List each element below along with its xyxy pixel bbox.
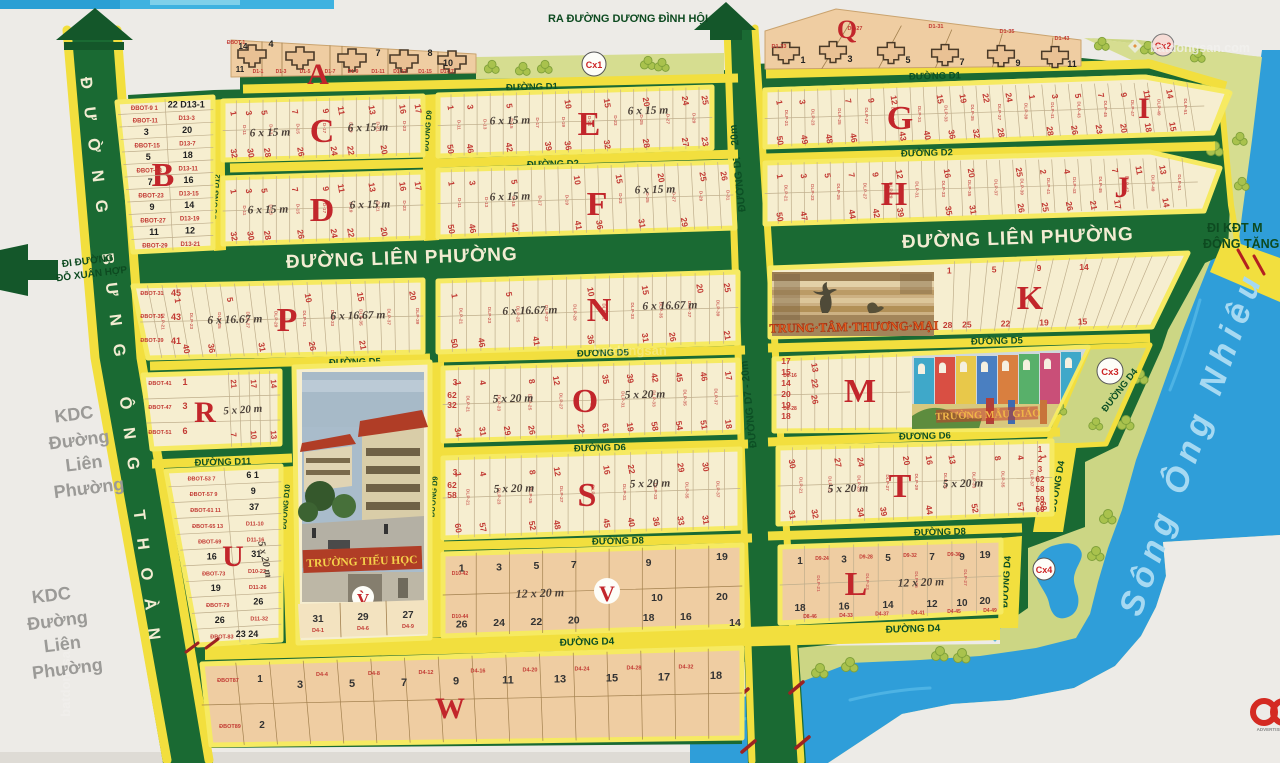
svg-text:22: 22 bbox=[345, 227, 357, 238]
svg-text:3: 3 bbox=[847, 54, 852, 64]
svg-text:H: H bbox=[881, 176, 907, 213]
svg-text:25: 25 bbox=[722, 282, 734, 293]
svg-text:D4-6: D4-6 bbox=[357, 626, 369, 632]
svg-text:26: 26 bbox=[667, 331, 679, 342]
svg-text:DLP-47: DLP-47 bbox=[1129, 100, 1135, 117]
svg-text:G: G bbox=[887, 100, 913, 137]
svg-text:DLP-27: DLP-27 bbox=[557, 393, 563, 410]
svg-text:58: 58 bbox=[447, 490, 457, 500]
svg-text:6 x 15 m: 6 x 15 m bbox=[489, 114, 530, 127]
svg-text:15: 15 bbox=[355, 291, 367, 302]
svg-text:23: 23 bbox=[1094, 124, 1106, 135]
svg-text:16: 16 bbox=[680, 611, 692, 623]
svg-text:22: 22 bbox=[345, 145, 357, 156]
svg-text:19: 19 bbox=[957, 93, 969, 104]
svg-text:27: 27 bbox=[680, 137, 692, 148]
svg-text:26: 26 bbox=[295, 229, 307, 240]
svg-text:9: 9 bbox=[646, 557, 652, 569]
svg-text:14: 14 bbox=[1079, 262, 1089, 272]
svg-text:50: 50 bbox=[445, 144, 457, 155]
svg-text:3: 3 bbox=[453, 467, 458, 477]
svg-text:ĐƯỜNG D1: ĐƯỜNG D1 bbox=[909, 69, 962, 82]
svg-text:30: 30 bbox=[245, 147, 257, 158]
svg-text:20: 20 bbox=[694, 283, 706, 294]
svg-text:15: 15 bbox=[1167, 121, 1179, 132]
svg-text:46: 46 bbox=[848, 132, 860, 143]
svg-text:5 x 20 m: 5 x 20 m bbox=[624, 388, 665, 401]
svg-text:24: 24 bbox=[329, 228, 341, 239]
svg-text:D-11: D-11 bbox=[241, 205, 247, 215]
svg-text:10: 10 bbox=[956, 598, 968, 609]
svg-text:6 x 15 m: 6 x 15 m bbox=[347, 121, 388, 134]
svg-text:12: 12 bbox=[551, 375, 563, 386]
svg-text:ĐBOT89: ĐBOT89 bbox=[219, 724, 241, 730]
svg-text:D-17: D-17 bbox=[537, 195, 543, 206]
svg-text:26: 26 bbox=[456, 618, 468, 630]
svg-text:9: 9 bbox=[1015, 58, 1020, 68]
svg-text:5: 5 bbox=[992, 264, 997, 274]
svg-text:TRUNG·TÂM·THƯƠNG·MẠI: TRUNG·TÂM·THƯƠNG·MẠI bbox=[769, 319, 938, 336]
svg-text:ĐBOT-1: ĐBOT-1 bbox=[227, 40, 246, 46]
svg-text:DLP-23: DLP-23 bbox=[188, 313, 194, 330]
svg-text:3: 3 bbox=[182, 401, 187, 411]
svg-text:DLP-35: DLP-35 bbox=[682, 389, 688, 406]
svg-text:34: 34 bbox=[855, 507, 867, 518]
svg-text:20: 20 bbox=[966, 167, 978, 178]
svg-text:D4-28: D4-28 bbox=[627, 665, 642, 671]
svg-text:58: 58 bbox=[649, 421, 661, 432]
svg-text:ĐBOT-61 11: ĐBOT-61 11 bbox=[190, 508, 221, 514]
svg-text:3: 3 bbox=[496, 561, 502, 573]
svg-text:28: 28 bbox=[943, 320, 953, 330]
svg-text:12 x 20 m: 12 x 20 m bbox=[898, 576, 945, 590]
svg-text:16: 16 bbox=[601, 464, 613, 475]
svg-text:10: 10 bbox=[651, 592, 663, 604]
svg-text:60: 60 bbox=[453, 523, 465, 534]
svg-text:7: 7 bbox=[375, 48, 380, 58]
svg-text:DLP-27: DLP-27 bbox=[962, 569, 968, 586]
svg-text:25: 25 bbox=[697, 171, 709, 182]
svg-text:9: 9 bbox=[453, 676, 459, 688]
svg-text:ĐI KĐT M: ĐI KĐT M bbox=[1207, 221, 1263, 235]
svg-text:N: N bbox=[587, 292, 612, 329]
svg-text:16: 16 bbox=[924, 455, 936, 466]
svg-text:31: 31 bbox=[787, 509, 799, 520]
svg-text:31: 31 bbox=[312, 614, 324, 625]
svg-text:17: 17 bbox=[781, 356, 791, 366]
svg-text:DLP-27: DLP-27 bbox=[558, 486, 564, 503]
svg-text:D4-4: D4-4 bbox=[316, 672, 329, 678]
svg-text:58: 58 bbox=[1036, 485, 1045, 494]
svg-text:ĐBOT-29: ĐBOT-29 bbox=[142, 244, 168, 250]
svg-text:DLP-37: DLP-37 bbox=[996, 104, 1002, 121]
svg-text:30: 30 bbox=[245, 230, 257, 241]
svg-text:5 x 20 m: 5 x 20 m bbox=[827, 482, 868, 495]
svg-text:C: C bbox=[310, 113, 335, 150]
svg-text:42: 42 bbox=[504, 142, 516, 153]
svg-text:13: 13 bbox=[366, 182, 378, 193]
svg-text:D10-44: D10-44 bbox=[452, 614, 469, 620]
svg-text:13: 13 bbox=[1157, 164, 1169, 175]
svg-text:D-19: D-19 bbox=[560, 117, 566, 128]
svg-text:26: 26 bbox=[1016, 202, 1028, 213]
svg-text:27: 27 bbox=[832, 457, 844, 468]
svg-text:DLP-37: DLP-37 bbox=[715, 481, 721, 498]
svg-text:22: 22 bbox=[626, 464, 638, 475]
svg-text:D13-7: D13-7 bbox=[179, 141, 196, 147]
svg-text:D-17: D-17 bbox=[534, 117, 540, 128]
svg-text:Cx4: Cx4 bbox=[1036, 565, 1053, 575]
svg-text:44: 44 bbox=[924, 504, 936, 515]
svg-text:25: 25 bbox=[962, 319, 972, 329]
svg-text:27: 27 bbox=[402, 610, 414, 621]
svg-text:D-31: D-31 bbox=[724, 190, 730, 201]
svg-text:D4-49: D4-49 bbox=[983, 608, 997, 614]
svg-text:10: 10 bbox=[572, 175, 584, 186]
svg-text:7: 7 bbox=[929, 552, 935, 563]
svg-text:11: 11 bbox=[149, 227, 159, 237]
svg-text:32: 32 bbox=[971, 128, 983, 139]
svg-text:20: 20 bbox=[979, 596, 991, 607]
svg-text:DLP-23: DLP-23 bbox=[486, 307, 492, 324]
svg-text:DLP-23: DLP-23 bbox=[809, 184, 815, 201]
svg-text:D1-1: D1-1 bbox=[253, 69, 264, 75]
svg-text:15: 15 bbox=[640, 285, 652, 296]
svg-text:D4-32: D4-32 bbox=[679, 664, 694, 670]
svg-text:5 x 20 m: 5 x 20 m bbox=[492, 392, 533, 405]
svg-text:48: 48 bbox=[824, 133, 836, 144]
svg-text:6 x 15 m: 6 x 15 m bbox=[634, 183, 675, 196]
svg-text:20: 20 bbox=[182, 125, 192, 135]
svg-text:22 D13-1: 22 D13-1 bbox=[168, 100, 205, 110]
svg-text:31: 31 bbox=[477, 426, 489, 437]
svg-text:15: 15 bbox=[1078, 317, 1088, 327]
svg-text:12: 12 bbox=[552, 466, 564, 477]
svg-text:D1-15: D1-15 bbox=[418, 69, 432, 75]
svg-text:29: 29 bbox=[502, 425, 514, 436]
svg-text:ĐBOT-31: ĐBOT-31 bbox=[140, 291, 163, 297]
svg-text:12: 12 bbox=[926, 599, 938, 610]
svg-text:52: 52 bbox=[527, 520, 539, 531]
svg-text:DLP-27: DLP-27 bbox=[861, 183, 867, 200]
svg-text:18: 18 bbox=[710, 670, 722, 682]
svg-text:D1-31: D1-31 bbox=[929, 24, 944, 30]
svg-text:ĐBOT-27: ĐBOT-27 bbox=[140, 219, 166, 225]
svg-text:40: 40 bbox=[922, 130, 934, 141]
svg-text:20: 20 bbox=[407, 290, 419, 301]
svg-text:DLP-39: DLP-39 bbox=[414, 308, 420, 325]
svg-text:DLP-25: DLP-25 bbox=[836, 108, 842, 125]
svg-text:9: 9 bbox=[149, 202, 154, 212]
svg-text:26: 26 bbox=[718, 170, 730, 181]
svg-text:29: 29 bbox=[675, 462, 687, 473]
svg-text:24: 24 bbox=[680, 95, 692, 106]
svg-text:DLP-35: DLP-35 bbox=[969, 104, 975, 121]
svg-text:21: 21 bbox=[722, 330, 734, 341]
svg-text:D9-28: D9-28 bbox=[859, 555, 873, 561]
svg-text:15: 15 bbox=[602, 97, 614, 108]
svg-text:6 x 15 m: 6 x 15 m bbox=[249, 126, 290, 139]
svg-text:36: 36 bbox=[562, 140, 574, 151]
svg-text:DLP-41: DLP-41 bbox=[1049, 102, 1055, 119]
svg-text:DLP-21: DLP-21 bbox=[783, 185, 789, 202]
svg-text:2: 2 bbox=[1038, 455, 1043, 464]
svg-text:26: 26 bbox=[307, 341, 319, 352]
svg-text:DLP-49: DLP-49 bbox=[1150, 175, 1156, 192]
svg-text:22: 22 bbox=[980, 92, 992, 103]
svg-text:15: 15 bbox=[614, 173, 626, 184]
svg-text:21: 21 bbox=[229, 379, 239, 389]
svg-text:D1-35: D1-35 bbox=[1000, 29, 1015, 35]
svg-text:18: 18 bbox=[781, 411, 791, 421]
svg-text:51: 51 bbox=[698, 419, 710, 430]
svg-text:ĐBOT87: ĐBOT87 bbox=[217, 678, 239, 684]
svg-text:10: 10 bbox=[562, 99, 574, 110]
svg-text:U: U bbox=[222, 540, 244, 573]
svg-text:60: 60 bbox=[1036, 505, 1045, 514]
svg-text:26: 26 bbox=[253, 597, 263, 607]
svg-text:26: 26 bbox=[215, 615, 225, 625]
svg-text:ĐBOT-47: ĐBOT-47 bbox=[148, 405, 171, 411]
svg-text:19: 19 bbox=[1039, 318, 1049, 328]
svg-text:D1-13: D1-13 bbox=[393, 69, 407, 75]
svg-text:57: 57 bbox=[477, 522, 489, 533]
svg-text:41: 41 bbox=[171, 336, 181, 346]
svg-text:A: A bbox=[307, 58, 329, 91]
svg-text:17: 17 bbox=[413, 180, 425, 191]
svg-text:3: 3 bbox=[297, 679, 303, 691]
svg-text:Cx1: Cx1 bbox=[586, 60, 603, 70]
svg-text:D4-16: D4-16 bbox=[471, 669, 486, 675]
svg-text:20: 20 bbox=[901, 455, 913, 466]
svg-text:D1-9: D1-9 bbox=[348, 69, 359, 75]
svg-text:D11-32: D11-32 bbox=[250, 617, 268, 623]
svg-text:DLP-43: DLP-43 bbox=[1076, 101, 1082, 118]
svg-text:45: 45 bbox=[674, 372, 686, 383]
svg-text:10: 10 bbox=[249, 430, 259, 440]
svg-text:D-15: D-15 bbox=[294, 123, 300, 134]
svg-text:6 x 16.67 m: 6 x 16.67 m bbox=[502, 304, 557, 317]
svg-text:50: 50 bbox=[446, 224, 458, 235]
svg-text:DLP-45: DLP-45 bbox=[1102, 101, 1108, 118]
svg-text:DLP-35: DLP-35 bbox=[966, 180, 972, 197]
svg-text:D10-42: D10-42 bbox=[452, 571, 469, 577]
svg-text:DLP-39: DLP-39 bbox=[1022, 103, 1028, 120]
svg-text:43: 43 bbox=[171, 312, 181, 322]
svg-text:14: 14 bbox=[781, 378, 791, 388]
svg-text:D4-9: D4-9 bbox=[402, 624, 414, 630]
svg-text:DLP-21: DLP-21 bbox=[457, 308, 463, 325]
svg-text:D-19: D-19 bbox=[563, 195, 569, 206]
svg-text:D-23: D-23 bbox=[401, 200, 407, 211]
svg-text:5 x 20 m: 5 x 20 m bbox=[942, 477, 983, 490]
svg-text:19: 19 bbox=[979, 550, 991, 561]
svg-text:1: 1 bbox=[800, 55, 805, 65]
svg-text:K: K bbox=[1017, 280, 1044, 317]
svg-text:ĐBOT-41: ĐBOT-41 bbox=[148, 381, 171, 387]
svg-text:5 x 20 m: 5 x 20 m bbox=[493, 482, 534, 495]
svg-text:20: 20 bbox=[379, 144, 391, 155]
svg-text:46: 46 bbox=[467, 223, 479, 234]
svg-text:17: 17 bbox=[413, 103, 425, 114]
svg-text:5: 5 bbox=[349, 678, 355, 690]
svg-text:28: 28 bbox=[995, 127, 1007, 138]
svg-text:DLP-33: DLP-33 bbox=[940, 181, 946, 198]
svg-text:D4-12: D4-12 bbox=[419, 670, 434, 676]
svg-text:14: 14 bbox=[184, 200, 194, 210]
svg-text:13: 13 bbox=[366, 104, 378, 115]
svg-text:16: 16 bbox=[397, 104, 409, 115]
svg-text:DLP-21: DLP-21 bbox=[798, 477, 804, 494]
svg-text:D1-43: D1-43 bbox=[1055, 36, 1070, 42]
svg-text:11: 11 bbox=[1067, 59, 1077, 69]
svg-text:D9-36: D9-36 bbox=[947, 552, 961, 558]
svg-text:DLP-31: DLP-31 bbox=[301, 310, 307, 327]
svg-text:7: 7 bbox=[148, 177, 153, 187]
svg-text:DLP-39: DLP-39 bbox=[1019, 178, 1025, 195]
svg-text:31: 31 bbox=[256, 342, 268, 353]
svg-text:40: 40 bbox=[626, 517, 638, 528]
svg-text:32: 32 bbox=[229, 148, 241, 159]
svg-text:batdongsan.com: batdongsan.com bbox=[1150, 41, 1250, 55]
svg-text:DLP-29: DLP-29 bbox=[572, 304, 578, 321]
svg-text:36: 36 bbox=[206, 343, 218, 354]
svg-text:ĐBOT-11: ĐBOT-11 bbox=[133, 118, 159, 124]
svg-text:61: 61 bbox=[600, 422, 612, 433]
svg-text:25: 25 bbox=[1040, 202, 1052, 213]
svg-text:ĐBOT-9 1: ĐBOT-9 1 bbox=[131, 106, 159, 112]
svg-text:4: 4 bbox=[268, 39, 273, 49]
svg-text:15: 15 bbox=[935, 93, 947, 104]
svg-text:31: 31 bbox=[967, 204, 979, 215]
svg-text:46: 46 bbox=[465, 143, 477, 154]
svg-text:6 x 15 m: 6 x 15 m bbox=[489, 190, 530, 203]
svg-text:14: 14 bbox=[269, 379, 279, 389]
svg-text:D4-20: D4-20 bbox=[523, 668, 538, 674]
svg-text:32: 32 bbox=[229, 231, 241, 242]
svg-text:20: 20 bbox=[781, 389, 791, 399]
svg-text:10: 10 bbox=[303, 292, 315, 303]
svg-text:22: 22 bbox=[575, 423, 587, 434]
svg-text:36: 36 bbox=[946, 129, 958, 140]
svg-text:D13-3: D13-3 bbox=[179, 116, 196, 122]
svg-text:D1-11: D1-11 bbox=[371, 69, 385, 75]
svg-text:22: 22 bbox=[1001, 318, 1011, 328]
svg-text:DLP-33: DLP-33 bbox=[943, 105, 949, 122]
svg-text:39: 39 bbox=[625, 373, 637, 384]
svg-text:D-13: D-13 bbox=[483, 197, 489, 208]
svg-text:6 x 15 m: 6 x 15 m bbox=[349, 198, 390, 211]
svg-text:D-23: D-23 bbox=[401, 121, 407, 132]
svg-text:D9-24: D9-24 bbox=[815, 556, 829, 562]
svg-text:ĐƯỜNG D8: ĐƯỜNG D8 bbox=[592, 534, 644, 547]
svg-text:21: 21 bbox=[357, 340, 369, 351]
svg-text:12 x 20 m: 12 x 20 m bbox=[515, 585, 564, 601]
svg-text:DLP-21: DLP-21 bbox=[464, 396, 470, 413]
svg-text:D4-41: D4-41 bbox=[911, 610, 925, 616]
svg-text:S: S bbox=[578, 477, 597, 514]
svg-text:1: 1 bbox=[182, 377, 187, 387]
svg-text:39: 39 bbox=[543, 141, 555, 152]
svg-text:5: 5 bbox=[905, 55, 910, 65]
svg-text:16: 16 bbox=[942, 168, 954, 179]
svg-text:D13-15: D13-15 bbox=[179, 192, 199, 198]
svg-text:ADVERTISING: ADVERTISING bbox=[1257, 727, 1280, 732]
svg-text:47: 47 bbox=[798, 210, 810, 221]
svg-text:23 24: 23 24 bbox=[236, 629, 259, 639]
svg-text:9: 9 bbox=[1037, 263, 1042, 273]
svg-text:20: 20 bbox=[379, 226, 391, 237]
svg-text:34: 34 bbox=[453, 427, 465, 438]
svg-text:52: 52 bbox=[969, 503, 981, 514]
svg-text:DLP-37: DLP-37 bbox=[1028, 470, 1034, 487]
svg-text:1: 1 bbox=[947, 266, 952, 276]
svg-text:28: 28 bbox=[262, 230, 274, 241]
svg-text:29: 29 bbox=[357, 612, 369, 623]
svg-text:ĐBOT-39: ĐBOT-39 bbox=[140, 338, 163, 344]
svg-text:16: 16 bbox=[838, 602, 850, 613]
svg-text:59: 59 bbox=[1036, 495, 1045, 504]
svg-text:T: T bbox=[889, 468, 912, 505]
svg-text:26: 26 bbox=[1064, 201, 1076, 212]
svg-text:ĐƯỜNG D5: ĐƯỜNG D5 bbox=[971, 334, 1024, 347]
svg-text:ĐBOT-18: ĐBOT-18 bbox=[137, 169, 163, 175]
svg-text:D-13: D-13 bbox=[482, 119, 488, 130]
svg-text:10: 10 bbox=[443, 58, 453, 68]
svg-text:ĐBOT-35: ĐBOT-35 bbox=[140, 314, 163, 320]
svg-text:ĐBOT-57 9: ĐBOT-57 9 bbox=[190, 492, 218, 498]
svg-text:30: 30 bbox=[787, 458, 799, 469]
svg-text:D-11: D-11 bbox=[456, 198, 462, 208]
svg-text:62: 62 bbox=[447, 390, 457, 400]
svg-text:62: 62 bbox=[447, 480, 457, 490]
svg-text:19: 19 bbox=[211, 583, 221, 593]
svg-text:62: 62 bbox=[1036, 475, 1045, 484]
svg-text:19: 19 bbox=[625, 421, 637, 432]
svg-text:DLP-51: DLP-51 bbox=[1182, 98, 1188, 115]
svg-text:12: 12 bbox=[185, 225, 195, 235]
svg-text:DLP-25: DLP-25 bbox=[835, 183, 841, 200]
svg-text:54: 54 bbox=[674, 420, 686, 431]
svg-text:V: V bbox=[599, 581, 615, 606]
svg-text:D1-23: D1-23 bbox=[772, 44, 787, 50]
svg-text:50: 50 bbox=[449, 338, 461, 349]
svg-text:D4-45: D4-45 bbox=[947, 609, 961, 615]
svg-text:26: 26 bbox=[295, 146, 307, 157]
svg-text:DLP-37: DLP-37 bbox=[992, 179, 998, 196]
svg-text:41: 41 bbox=[531, 335, 543, 346]
svg-text:42: 42 bbox=[649, 372, 661, 383]
svg-text:18: 18 bbox=[794, 603, 806, 614]
svg-text:1: 1 bbox=[1038, 445, 1043, 454]
svg-text:DLP-49: DLP-49 bbox=[1155, 99, 1161, 116]
svg-text:ĐBOT-53 7: ĐBOT-53 7 bbox=[188, 476, 216, 482]
svg-text:7: 7 bbox=[401, 677, 407, 689]
svg-text:35: 35 bbox=[943, 205, 955, 216]
svg-text:2: 2 bbox=[259, 720, 265, 731]
svg-text:D4-33: D4-33 bbox=[839, 613, 853, 619]
svg-text:D8-16: D8-16 bbox=[783, 373, 797, 379]
svg-text:46: 46 bbox=[698, 371, 710, 382]
svg-text:M: M bbox=[844, 373, 876, 410]
svg-text:26: 26 bbox=[1069, 125, 1081, 136]
svg-text:D-29: D-29 bbox=[690, 113, 696, 124]
svg-text:6 x 15 m: 6 x 15 m bbox=[627, 104, 668, 117]
svg-text:ĐBOT-69: ĐBOT-69 bbox=[198, 540, 221, 546]
svg-text:29: 29 bbox=[679, 217, 691, 228]
svg-text:O: O bbox=[572, 383, 598, 420]
svg-text:ĐBOT-51: ĐBOT-51 bbox=[148, 430, 171, 436]
